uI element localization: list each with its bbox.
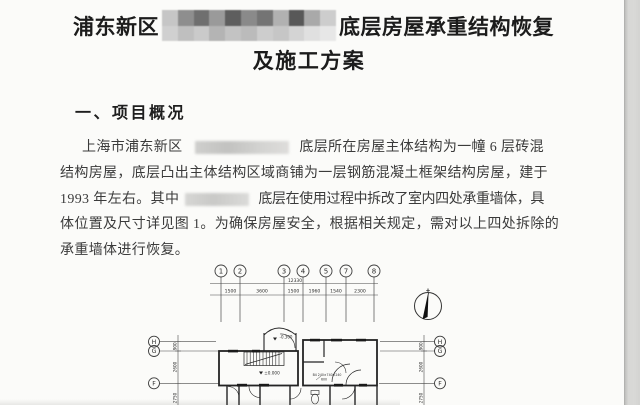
mosaic-cell [241, 26, 257, 42]
body-line-3-suffix: 底层在使用过程中拆改了室内四处承重墙体，具 [258, 188, 544, 208]
body-line-1-suffix: 底层所在房屋主体结构为一幢 6 层砖混 [299, 136, 544, 156]
page-right-edge [624, 0, 640, 405]
dim-side: 2750 [419, 392, 424, 403]
mosaic-cell [225, 10, 241, 26]
grid-row-label: G [438, 348, 443, 355]
grid-row-label: F [152, 381, 156, 388]
top-dimensions: 12330 1500 3600 1500 1960 1540 2300 [210, 278, 378, 295]
dim-segment: 1500 [225, 289, 237, 295]
body-line-3: 1993 年左右。其中 底层在使用过程中拆改了室内四处承重墙体，具 [60, 189, 544, 207]
mosaic-cell [289, 26, 305, 42]
dim-segment: 1500 [288, 289, 300, 295]
elevation-entry: -0.300 [280, 335, 293, 340]
mosaic-cell [225, 26, 241, 42]
mosaic-cell [320, 26, 336, 42]
title-redaction-mosaic [162, 10, 336, 41]
grid-rows-left: H G F [149, 336, 220, 389]
body-line-4: 体位置及尺寸详见图 1。为确保房屋安全，根据相关规定，需对以上四处拆除的 [60, 214, 544, 232]
mosaic-cell [257, 10, 273, 26]
grid-rows-right: H G F [379, 336, 446, 389]
grid-col-label: 2 [238, 267, 242, 275]
mosaic-cell [194, 26, 210, 42]
building-plan: -0.300 ±0.000 B4 240×740×240 600 [219, 328, 377, 405]
mosaic-cell [162, 26, 178, 42]
mosaic-cell [209, 10, 225, 26]
grid-row-label: H [152, 339, 157, 346]
side-dimensions-right: 900 2600 2750 [419, 335, 428, 405]
mosaic-cell [273, 10, 289, 26]
grid-col-label: 7 [344, 267, 348, 275]
grid-row-label: G [152, 348, 157, 355]
mosaic-cell [304, 26, 320, 42]
redacted-text-blur [185, 193, 249, 206]
side-dimensions-left: 900 2600 2750 [173, 335, 182, 405]
mosaic-cell [209, 26, 225, 42]
section-heading: 一、项目概况 [75, 99, 186, 123]
dim-segment: 2300 [354, 289, 366, 295]
body-line-1: 上海市浦东新区 底层所在房屋主体结构为一幢 6 层砖混 [60, 137, 544, 155]
title-line-2: 及施工方案 [73, 45, 545, 75]
mosaic-cell [304, 10, 320, 26]
body-line-1-prefix: 上海市浦东新区 [82, 136, 182, 156]
north-arrow-icon [415, 289, 442, 320]
mosaic-cell [289, 10, 305, 26]
document-page: 浦东新区 底层房屋承重结构恢复 及施工方案 一、项目概况 上海市浦东新区 底层所… [0, 0, 640, 405]
mosaic-cell [273, 26, 289, 42]
dim-side: 2600 [419, 361, 424, 372]
title-prefix: 浦东新区 [73, 11, 159, 41]
grid-col-label: 5 [324, 267, 328, 275]
dim-side: 900 [173, 342, 178, 350]
page-bottom-shadow [0, 399, 400, 405]
body-line-3-prefix: 1993 年左右。其中 [60, 188, 179, 208]
dim-side: 900 [419, 342, 424, 350]
mosaic-cell [178, 10, 194, 26]
redacted-text-blur [195, 141, 289, 154]
grid-row-label: F [438, 381, 442, 388]
dim-side: 2600 [173, 361, 178, 372]
mosaic-cell [194, 10, 210, 26]
dim-segment: 3600 [256, 289, 268, 295]
grid-col-label: 1 [219, 267, 223, 275]
plan-note-line-1: B4 240×740×240 [313, 373, 342, 377]
plan-note-line-2: 600 [321, 378, 327, 382]
dim-segment: 1540 [330, 289, 342, 295]
mosaic-cell [320, 10, 336, 26]
floor-plan-figure-1: 1 2 3 4 5 7 8 12330 1500 3600 1500 1960 … [128, 258, 480, 405]
grid-row-label: H [438, 339, 443, 346]
mosaic-cell [162, 10, 178, 26]
title-line-1: 浦东新区 底层房屋承重结构恢复 [73, 9, 554, 42]
mosaic-cell [178, 26, 194, 42]
grid-col-label: 4 [301, 267, 306, 275]
elevation-floor: ±0.000 [264, 371, 280, 376]
mosaic-cell [257, 26, 273, 42]
grid-col-label: 8 [372, 267, 376, 275]
body-line-5: 承重墙体进行恢复。 [60, 240, 544, 258]
grid-col-label: 3 [282, 267, 286, 275]
dim-overall: 12330 [288, 278, 302, 284]
dim-segment: 1960 [309, 289, 321, 295]
body-line-2: 结构房屋，底层凸出主体结构区域商铺为一层钢筋混凝土框架结构房屋，建于 [60, 163, 544, 181]
mosaic-cell [241, 10, 257, 26]
title-suffix: 底层房屋承重结构恢复 [339, 11, 554, 41]
